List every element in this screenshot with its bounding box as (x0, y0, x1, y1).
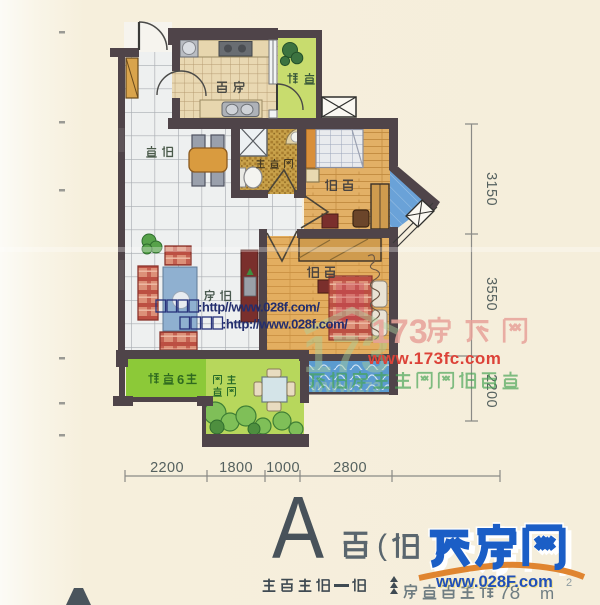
svg-text::http://www.028f.com/: :http://www.028f.com/ (222, 317, 348, 332)
svg-text:2200: 2200 (150, 460, 184, 476)
svg-text:3150: 3150 (483, 172, 499, 206)
svg-text:A: A (272, 478, 324, 577)
svg-text:2: 2 (566, 577, 572, 589)
svg-text:1800: 1800 (219, 460, 253, 476)
svg-text::http//www.028f.com/: :http//www.028f.com/ (198, 300, 320, 315)
svg-text:2800: 2800 (333, 460, 367, 476)
svg-text:6: 6 (177, 372, 184, 387)
svg-text:3550: 3550 (483, 277, 499, 311)
svg-text:(: ( (377, 529, 387, 562)
svg-text:173: 173 (371, 313, 428, 351)
svg-text:www.028F.com: www.028F.com (435, 573, 553, 591)
svg-text:1000: 1000 (266, 460, 300, 476)
svg-text:www.173fc.com: www.173fc.com (367, 349, 501, 368)
